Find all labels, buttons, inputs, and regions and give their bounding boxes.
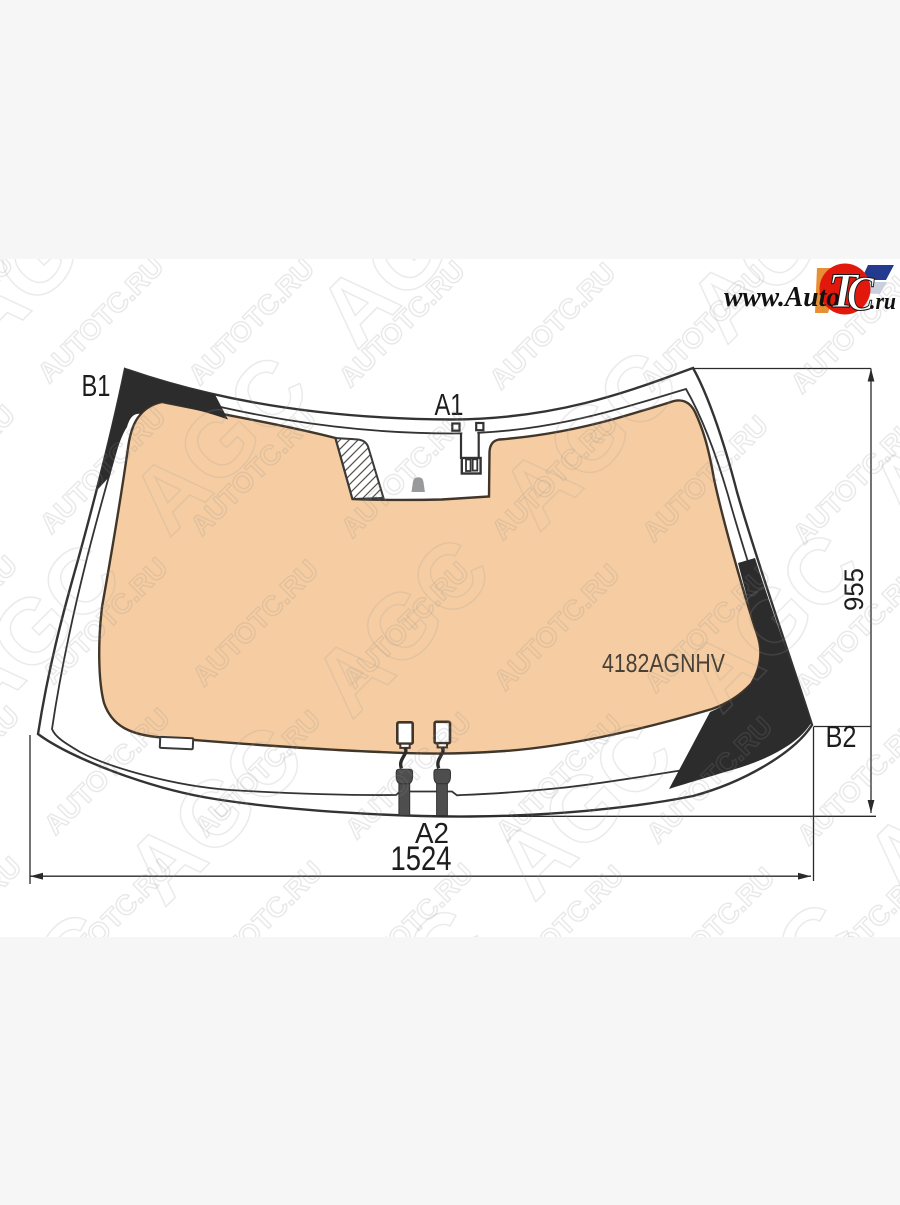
svg-text:.ru: .ru (870, 289, 896, 315)
svg-text:www.Auto: www.Auto (724, 282, 840, 313)
